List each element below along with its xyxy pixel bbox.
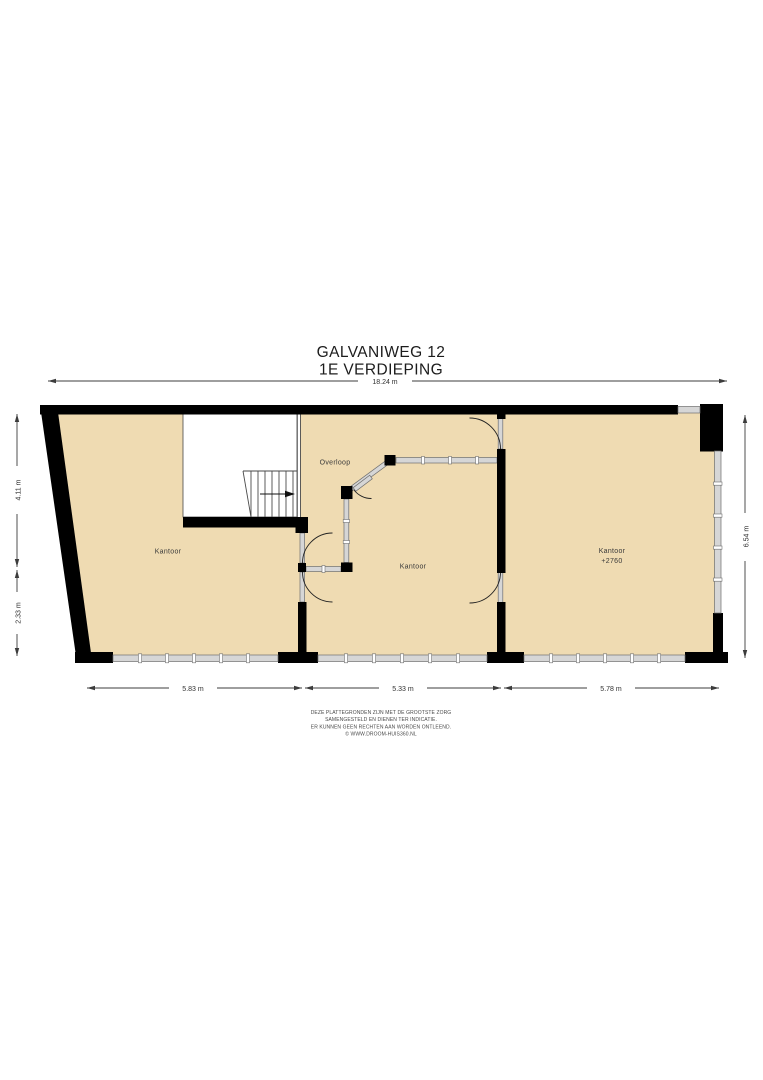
room-sublabel-level: +2760: [601, 558, 622, 565]
window-top-right: [678, 407, 700, 414]
dimension-top-label: 18.24 m: [372, 379, 397, 386]
dimension-right: 6.54 m: [740, 415, 751, 658]
windows-bottom-right: [524, 654, 685, 663]
dimension-left-lower: 2.33 m: [12, 570, 23, 656]
dimension-bottom-left: 5.83 m: [87, 683, 302, 694]
room-label-kantoor-left: Kantoor: [155, 549, 182, 556]
glass-partition-vertical: [343, 499, 349, 563]
room-label-kantoor-right: Kantoor: [599, 548, 626, 555]
dimension-bottom-right-label: 5.78 m: [600, 686, 622, 693]
page-title-line1: GALVANIWEG 12: [317, 344, 446, 361]
windows-bottom-left: [113, 654, 278, 663]
dimension-top: 18.24 m: [48, 376, 727, 387]
windows-right-wall: [714, 451, 723, 613]
dimension-bottom-middle: 5.33 m: [305, 683, 501, 694]
windows-bottom-middle: [318, 654, 487, 663]
stairwell: [183, 412, 301, 517]
room-label-kantoor-middle: Kantoor: [400, 564, 427, 571]
dimension-right-label: 6.54 m: [744, 526, 751, 548]
dimension-bottom-right: 5.78 m: [504, 683, 719, 694]
disclaimer-line4: © WWW.DROOM-HUIS360.NL: [345, 731, 417, 738]
dimension-left-lower-label: 2.33 m: [16, 602, 23, 624]
disclaimer-line3: ER KUNNEN GEEN RECHTEN AAN WORDEN ONTLEE…: [311, 724, 451, 730]
dimension-bottom-middle-label: 5.33 m: [392, 686, 414, 693]
disclaimer-line2: SAMENGESTELD EN DIENEN TER INDICATIE.: [325, 717, 437, 723]
wall-interior-right: [497, 414, 506, 653]
dimension-left-upper-label: 4.11 m: [16, 479, 23, 500]
floor-surface: [54, 412, 716, 655]
disclaimer: DEZE PLATTEGRONDEN ZIJN MET DE GROOTSTE …: [311, 710, 452, 738]
disclaimer-line1: DEZE PLATTEGRONDEN ZIJN MET DE GROOTSTE …: [311, 710, 452, 716]
room-label-overloop: Overloop: [320, 460, 351, 467]
floorplan-drawing: GALVANIWEG 12 1E VERDIEPING: [0, 0, 763, 1080]
floorplan-page: GALVANIWEG 12 1E VERDIEPING: [0, 0, 763, 1080]
glass-partition-top: [396, 457, 497, 465]
dimension-left-upper: 4.11 m: [12, 414, 23, 567]
glass-partition-lower: [306, 566, 341, 573]
dimension-bottom-left-label: 5.83 m: [182, 686, 204, 693]
